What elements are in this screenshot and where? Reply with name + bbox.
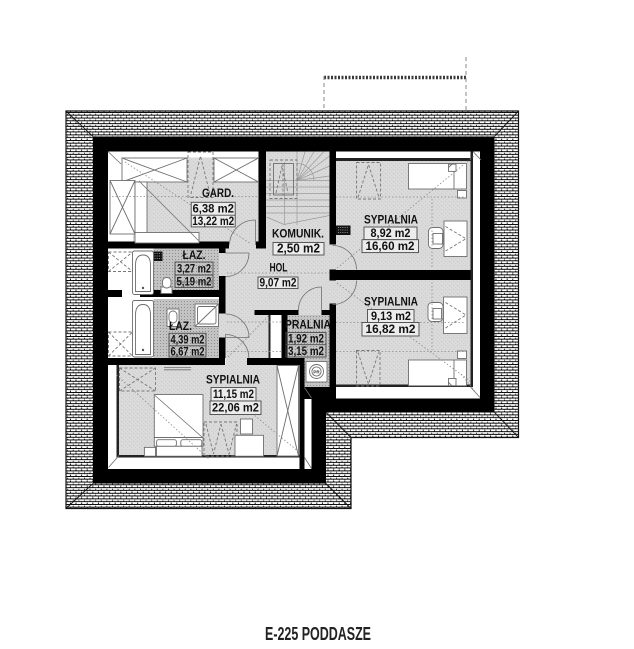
svg-text:6,67 m2: 6,67 m2 <box>171 345 205 359</box>
svg-text:SYPIALNIA: SYPIALNIA <box>206 373 260 387</box>
svg-text:PRALNIA: PRALNIA <box>285 318 331 332</box>
svg-text:9,13 m2: 9,13 m2 <box>371 309 411 323</box>
svg-text:SYPIALNIA: SYPIALNIA <box>364 295 418 309</box>
svg-text:KOMUNIK.: KOMUNIK. <box>272 227 324 241</box>
svg-text:13,22 m2: 13,22 m2 <box>192 214 234 228</box>
svg-text:E-225 PODDASZE: E-225 PODDASZE <box>265 624 371 644</box>
svg-text:2,50 m2: 2,50 m2 <box>277 242 320 256</box>
svg-text:HOL: HOL <box>270 261 288 275</box>
svg-text:11,15 m2: 11,15 m2 <box>213 387 254 401</box>
svg-text:16,82 m2: 16,82 m2 <box>366 322 416 336</box>
svg-text:PR: PR <box>313 370 320 375</box>
svg-text:16,60 m2: 16,60 m2 <box>366 239 415 253</box>
svg-text:22,06 m2: 22,06 m2 <box>212 401 259 415</box>
svg-text:GARD.: GARD. <box>202 186 234 200</box>
svg-text:SYPIALNIA: SYPIALNIA <box>364 213 418 227</box>
svg-text:9,07 m2: 9,07 m2 <box>260 276 297 290</box>
svg-text:3,15 m2: 3,15 m2 <box>288 344 324 358</box>
svg-text:ŁAZ.: ŁAZ. <box>183 250 206 262</box>
svg-text:ŁAZ.: ŁAZ. <box>169 321 192 333</box>
svg-text:8,92 m2: 8,92 m2 <box>371 226 411 240</box>
svg-text:5,19 m2: 5,19 m2 <box>177 274 212 288</box>
